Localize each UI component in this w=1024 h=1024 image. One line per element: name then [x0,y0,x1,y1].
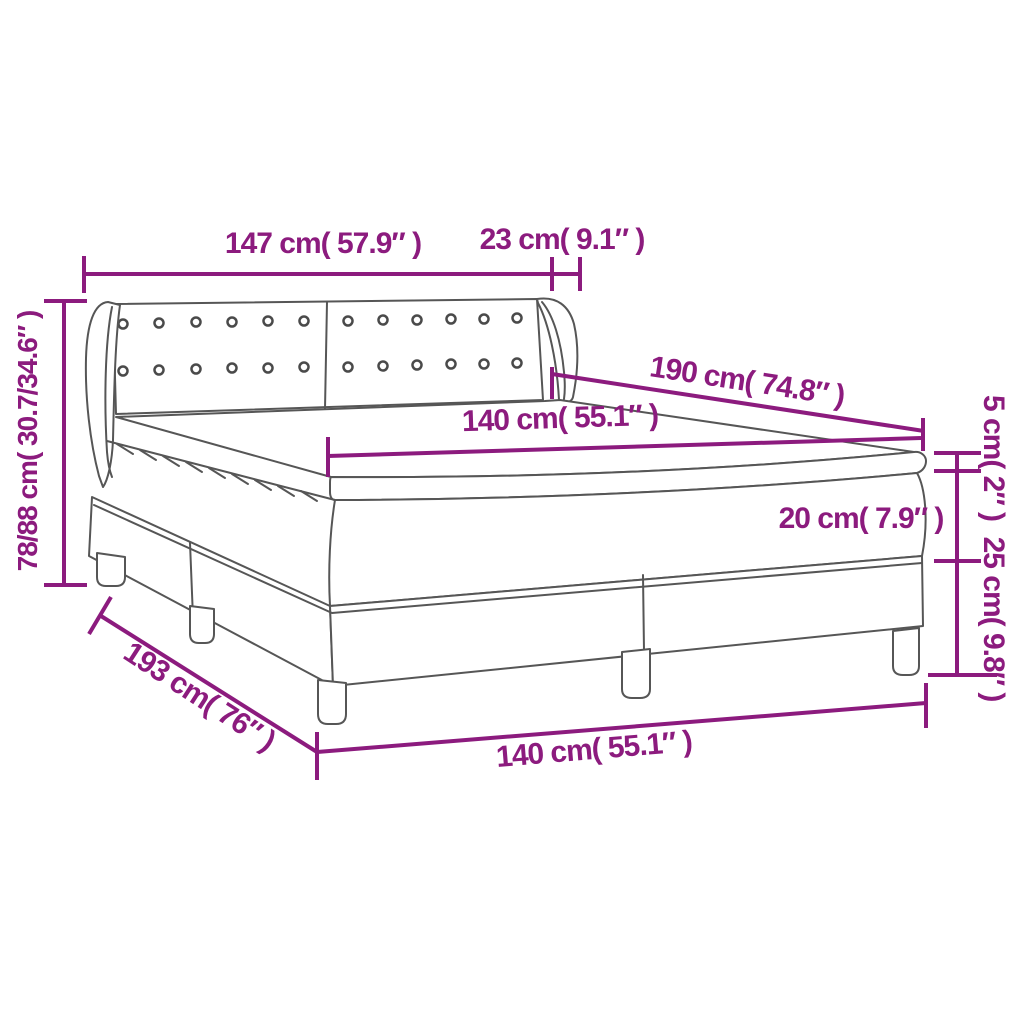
dim-topper-height-label: 5 cm( 2″ ) [976,395,1010,521]
dim-line-overall-height [44,301,87,585]
dim-mattress-width-label: 140 cm( 55.1″ ) [461,399,658,439]
headboard-face [113,299,543,414]
dim-overall-height-label: 78/88 cm( 30.7/34.6″ ) [12,311,44,572]
leg-back-left [97,553,125,586]
dim-mattress-height-label: 20 cm( 7.9″ ) [779,502,944,536]
dim-wing-depth-label: 23 cm( 9.1″ ) [480,223,645,257]
dim-line-headboard-width [84,256,580,293]
product-dimension-diagram: 147 cm( 57.9″ ) 23 cm( 9.1″ ) 190 cm( 74… [0,0,1024,1024]
leg-mid-left [190,606,214,643]
leg-front-corner [318,680,346,724]
headboard-left-wing [86,302,120,487]
base-front-seam [643,575,644,651]
leg-front-right [893,628,919,675]
leg-front-middle [622,649,650,698]
dim-base-height-label: 25 cm( 9.8″ ) [976,537,1010,702]
dim-headboard-width-label: 147 cm( 57.9″ ) [225,227,421,261]
